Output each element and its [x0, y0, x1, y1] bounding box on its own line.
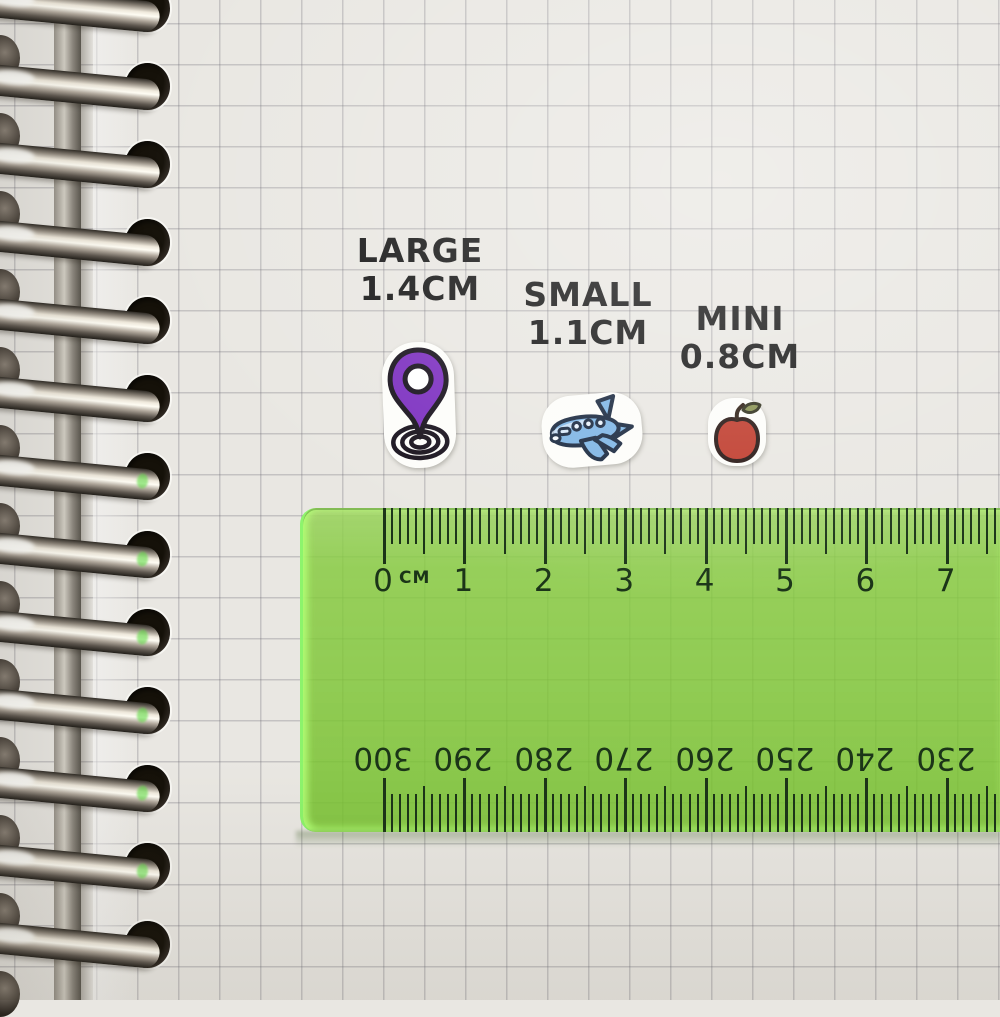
ruler-tick — [890, 794, 892, 832]
ruler-tick — [504, 508, 506, 554]
ruler-tick — [447, 508, 449, 544]
ruler-tick — [785, 778, 788, 832]
ruler-number-bottom: 290 — [434, 742, 493, 773]
ruler-tick — [721, 508, 723, 544]
ruler-tick — [922, 508, 924, 544]
ruler-tick — [777, 794, 779, 832]
ruler-tick — [970, 794, 972, 832]
ruler-tick — [616, 794, 618, 832]
label-mini-size: 0.8CM — [645, 338, 835, 376]
ruler-tick — [383, 778, 386, 832]
ruler-tick — [632, 508, 634, 544]
ruler-tick — [455, 794, 457, 832]
ruler-tick — [471, 508, 473, 544]
ruler-number-bottom: 280 — [514, 742, 573, 773]
ruler-number-top: 1 — [454, 566, 474, 597]
ruler-number-top: 7 — [936, 566, 956, 597]
ruler-tick — [399, 508, 401, 544]
ruler-tick — [664, 508, 666, 554]
ruler-tick — [930, 794, 932, 832]
ruler-tick — [536, 508, 538, 544]
ruler-tick — [648, 794, 650, 832]
ruler-tick — [415, 508, 417, 544]
ruler-tick — [825, 786, 827, 832]
ruler-tick — [423, 508, 425, 554]
ruler-tick — [857, 794, 859, 832]
ruler-tick — [640, 508, 642, 544]
ruler-tick — [938, 794, 940, 832]
ruler-tick — [986, 786, 988, 832]
ruler-tick — [801, 508, 803, 544]
ruler-tick — [721, 794, 723, 832]
ruler-tick — [713, 508, 715, 544]
ruler-tick — [994, 794, 996, 832]
ruler-tick — [479, 508, 481, 544]
ruler-tick — [600, 508, 602, 544]
ruler-tick — [423, 786, 425, 832]
airplane-icon — [539, 390, 645, 470]
ruler-tick — [383, 508, 386, 564]
ruler-tick — [648, 508, 650, 544]
apple-sticker — [708, 398, 766, 466]
ruler-number-top: 0 — [373, 566, 393, 597]
ruler-number-bottom: 300 — [353, 742, 412, 773]
ruler-number-top: 3 — [614, 566, 634, 597]
ruler-tick — [857, 508, 859, 544]
ruler-tick — [463, 778, 466, 832]
ruler-tick — [761, 508, 763, 544]
ruler-tick — [946, 508, 949, 564]
ruler-tick — [865, 778, 868, 832]
ruler-number-bottom: 250 — [755, 742, 814, 773]
ruler-tick — [962, 794, 964, 832]
ruler-tick — [624, 778, 627, 832]
ruler-tick — [705, 778, 708, 832]
ruler-tick — [938, 508, 940, 544]
ruler-tick — [431, 508, 433, 544]
size-label-large: LARGE 1.4CM — [325, 232, 515, 308]
ruler-tick — [689, 508, 691, 544]
ruler-tick — [439, 508, 441, 544]
ruler-tick — [560, 794, 562, 832]
apple-icon — [708, 398, 766, 466]
ruler-tick — [705, 508, 708, 564]
ruler-tick — [785, 508, 788, 564]
ruler-tick — [906, 508, 908, 554]
ruler-tick — [552, 508, 554, 544]
ruler-tick — [841, 794, 843, 832]
ruler-tick — [737, 794, 739, 832]
ruler-tick — [753, 508, 755, 544]
ruler-tick — [576, 508, 578, 544]
ruler-tick — [463, 508, 466, 564]
ruler-tick — [431, 794, 433, 832]
ruler-tick — [946, 778, 949, 832]
ruler-tick — [664, 786, 666, 832]
ruler-tick — [544, 508, 547, 564]
ruler-tick — [568, 508, 570, 544]
ruler-tick — [689, 794, 691, 832]
ruler-tick — [817, 508, 819, 544]
ruler-tick — [584, 786, 586, 832]
ruler-number-top: 4 — [695, 566, 715, 597]
ruler-tick — [592, 794, 594, 832]
ruler-tick — [672, 794, 674, 832]
ruler-tick — [616, 508, 618, 544]
ruler-tick — [680, 508, 682, 544]
ruler: CM 01234567300290280270260250240230 — [300, 508, 1000, 832]
ruler-tick — [479, 794, 481, 832]
ruler-tick — [624, 508, 627, 564]
ruler-tick — [865, 508, 868, 564]
ruler-tick — [737, 508, 739, 544]
ruler-number-bottom: 240 — [836, 742, 895, 773]
notebook-photo: { "size_labels": [ { "id": "large", "tit… — [0, 0, 1000, 1000]
ruler-tick — [656, 794, 658, 832]
ruler-tick — [898, 508, 900, 544]
coil-layer — [0, 0, 220, 1000]
ruler-tick — [994, 508, 996, 544]
ruler-tick — [560, 508, 562, 544]
ruler-tick — [471, 794, 473, 832]
ruler-tick — [809, 508, 811, 544]
ruler-tick — [922, 794, 924, 832]
ruler-tick — [978, 794, 980, 832]
size-label-mini: MINI 0.8CM — [645, 300, 835, 376]
ruler-tick — [761, 794, 763, 832]
label-large-size: 1.4CM — [325, 270, 515, 308]
ruler-tick — [528, 794, 530, 832]
ruler-tick — [954, 794, 956, 832]
label-mini-title: MINI — [645, 300, 835, 338]
coil-back-blob — [0, 971, 20, 1017]
ruler-tick — [898, 794, 900, 832]
ruler-tick — [745, 786, 747, 832]
ruler-tick — [496, 794, 498, 832]
ruler-tick — [930, 508, 932, 544]
ruler-tick — [753, 794, 755, 832]
ruler-tick — [600, 794, 602, 832]
ruler-number-bottom: 260 — [675, 742, 734, 773]
ruler-tick — [890, 508, 892, 544]
ruler-tick — [777, 508, 779, 544]
ruler-tick — [399, 794, 401, 832]
ruler-tick — [833, 508, 835, 544]
ruler-tick — [640, 794, 642, 832]
ruler-tick — [680, 794, 682, 832]
ruler-tick — [656, 508, 658, 544]
ruler-tick — [697, 794, 699, 832]
ruler-tick — [512, 508, 514, 544]
ruler-tick — [801, 794, 803, 832]
ruler-tick — [881, 508, 883, 544]
airplane-sticker — [539, 390, 645, 470]
ruler-tick — [439, 794, 441, 832]
ruler-tick — [584, 508, 586, 554]
ruler-tick — [978, 508, 980, 544]
ruler-tick — [970, 508, 972, 544]
ruler-tick — [729, 794, 731, 832]
ruler-tick — [608, 794, 610, 832]
ruler-tick — [552, 794, 554, 832]
ruler-tick — [520, 794, 522, 832]
ruler-number-top: 5 — [775, 566, 795, 597]
ruler-tick — [568, 794, 570, 832]
ruler-tick — [544, 778, 547, 832]
ruler-tick — [986, 508, 988, 554]
ruler-tick — [825, 508, 827, 554]
ruler-tick — [817, 794, 819, 832]
ruler-tick — [881, 794, 883, 832]
ruler-tick — [914, 508, 916, 544]
ruler-tick — [488, 508, 490, 544]
ruler-tick — [809, 794, 811, 832]
ruler-tick — [849, 794, 851, 832]
ruler-number-bottom: 270 — [595, 742, 654, 773]
ruler-tick — [954, 508, 956, 544]
ruler-tick — [873, 794, 875, 832]
ruler-tick — [833, 794, 835, 832]
ruler-tick — [391, 794, 393, 832]
ruler-tick — [769, 508, 771, 544]
ruler-tick — [488, 794, 490, 832]
ruler-tick — [793, 794, 795, 832]
location-pin-icon — [381, 341, 457, 469]
ruler-tick — [873, 508, 875, 544]
ruler-tick — [496, 508, 498, 544]
ruler-tick — [415, 794, 417, 832]
ruler-tick — [512, 794, 514, 832]
ruler-tick — [528, 508, 530, 544]
ruler-tick — [407, 508, 409, 544]
ruler-tick — [608, 508, 610, 544]
ruler-tick — [391, 508, 393, 544]
ruler-number-top: 6 — [856, 566, 876, 597]
ruler-number-top: 2 — [534, 566, 554, 597]
ruler-tick — [849, 508, 851, 544]
ruler-tick — [455, 508, 457, 544]
ruler-tick — [793, 508, 795, 544]
ruler-tick — [520, 508, 522, 544]
location-pin-sticker — [381, 341, 457, 469]
ruler-tick — [504, 786, 506, 832]
ruler-tick — [592, 508, 594, 544]
spiral-coil — [0, 0, 161, 33]
label-large-title: LARGE — [325, 232, 515, 270]
ruler-tick — [729, 508, 731, 544]
ruler-tick — [745, 508, 747, 554]
ruler-tick — [632, 794, 634, 832]
ruler-tick — [906, 786, 908, 832]
ruler-tick — [672, 508, 674, 544]
ruler-number-bottom: 230 — [916, 742, 975, 773]
ruler-tick — [914, 794, 916, 832]
ruler-tick — [536, 794, 538, 832]
ruler-tick — [713, 794, 715, 832]
ruler-tick — [769, 794, 771, 832]
ruler-tick — [697, 508, 699, 544]
ruler-unit-label: CM — [399, 568, 430, 588]
ruler-tick — [576, 794, 578, 832]
ruler-tick — [962, 508, 964, 544]
ruler-tick — [447, 794, 449, 832]
ruler-tick — [407, 794, 409, 832]
ruler-tick — [841, 508, 843, 544]
ruler-shadow — [296, 831, 1000, 847]
